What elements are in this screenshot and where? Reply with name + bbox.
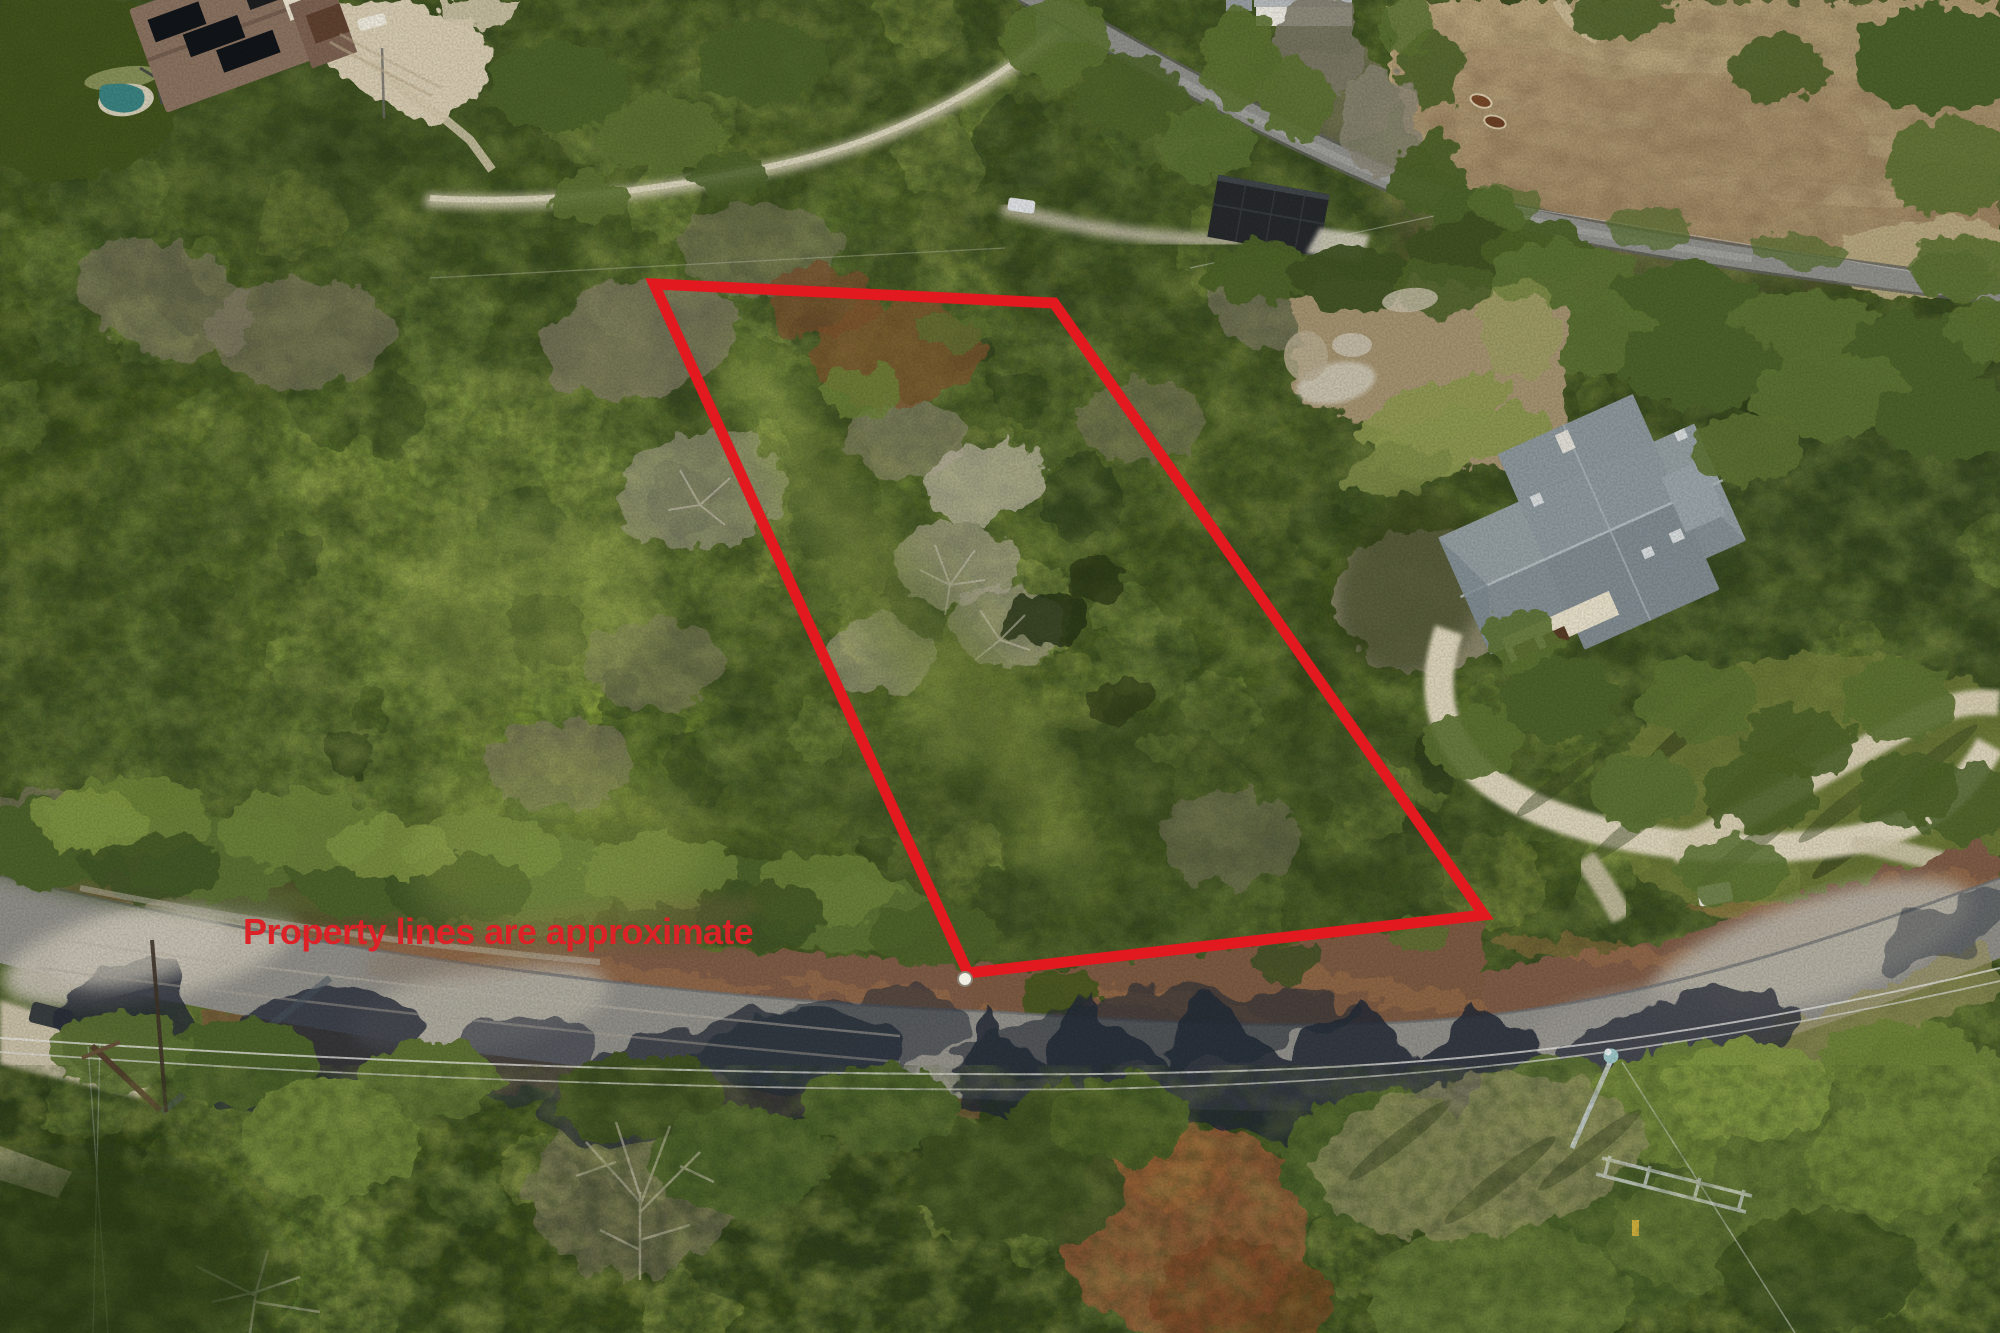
svg-text:Property lines are approximate: Property lines are approximate bbox=[243, 911, 753, 952]
